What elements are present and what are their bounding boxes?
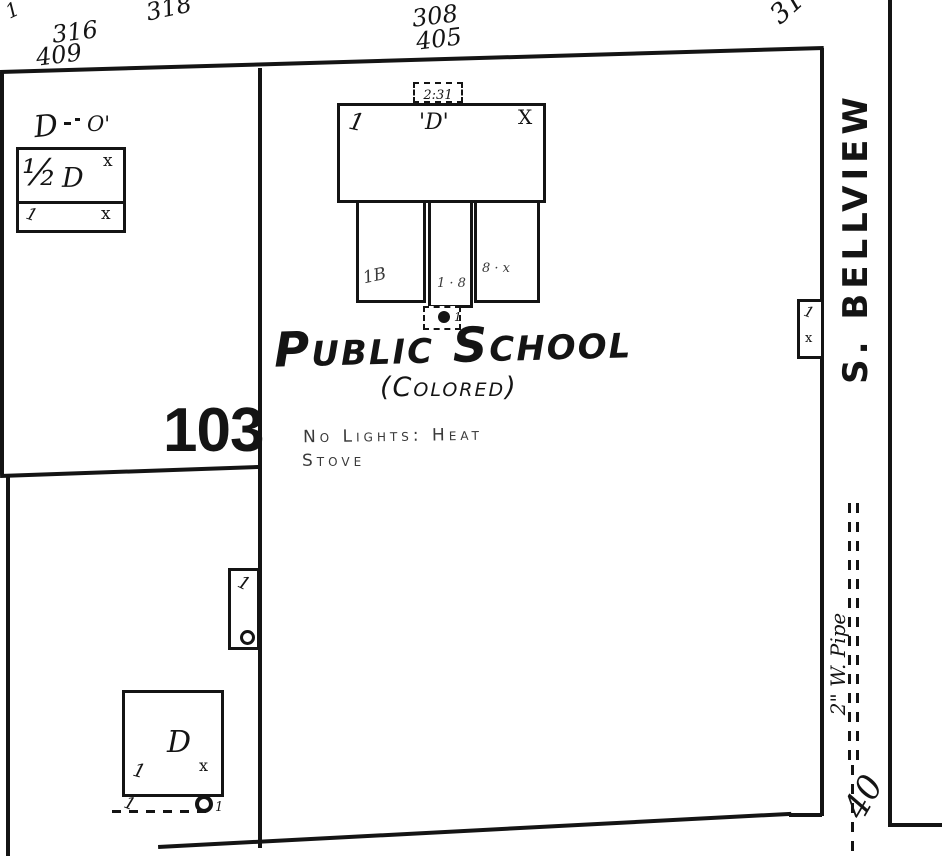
street-east-foot-line <box>890 823 942 827</box>
nw-dwelling-strip-right: x <box>101 206 111 223</box>
school-wing-left-mark: 1B <box>361 266 387 287</box>
school-main-mark-center: 'D' <box>419 112 449 134</box>
street-west-foot-line <box>789 813 822 817</box>
left-edge-line <box>0 72 4 474</box>
school-note-line1: No Lights: Heat <box>303 427 483 447</box>
street-west-line <box>820 48 824 816</box>
nw-annotation-label: D <box>32 111 59 143</box>
school-subtitle: (Colored) <box>380 374 518 401</box>
mid-lot-line <box>0 465 262 478</box>
sw-dwelling-mark-right: x <box>199 758 208 774</box>
top-lot-line <box>0 46 824 74</box>
street-name: S. BELLVIEW <box>839 92 873 384</box>
house-number-318: 318 <box>144 0 194 25</box>
house-number-31: 31 <box>765 0 809 29</box>
sw-porch-circle <box>195 795 213 813</box>
street-width-mark: 40 <box>838 770 889 824</box>
ink-dash <box>64 122 71 125</box>
school-wing-right-mark: 8 · x <box>482 262 510 275</box>
house-number-stray: 1 <box>2 0 22 22</box>
school-main-mark-right: X <box>518 107 532 127</box>
nw-annotation-mark: O' <box>87 114 110 135</box>
street-east-line <box>888 0 892 827</box>
house-number-409: 409 <box>35 40 83 69</box>
left-lower-lot-line <box>6 474 10 856</box>
nw-dwelling-label: D <box>62 165 84 192</box>
school-title: Public School <box>273 317 632 374</box>
school-roof-mark: 2:31 <box>423 88 452 103</box>
west-porch-circle <box>240 630 255 645</box>
water-pipe-label: 2" W. Pipe <box>828 613 848 716</box>
block-number: 103 <box>163 400 263 462</box>
school-wing-middle-mark: 1 · 8 <box>437 277 466 290</box>
house-number-405: 405 <box>415 24 463 53</box>
sanborn-map: 2:31 1 'D' X 1B 1 · 8 8 · x 1 1 x 1 ½ D … <box>0 0 942 856</box>
street-porch-mark-bottom: x <box>805 332 812 345</box>
nw-dwelling-story: ½ <box>22 156 57 192</box>
water-pipe-dash-right <box>856 503 859 765</box>
school-roof-mark-box: 2:31 <box>413 82 463 103</box>
school-note-line2: Stove <box>302 453 365 470</box>
ink-dash <box>75 118 80 121</box>
bottom-lot-line <box>158 812 791 849</box>
school-wing-middle <box>428 200 473 308</box>
nw-dwelling-corner-mark: x <box>103 153 113 170</box>
sw-dwelling-label: D <box>167 728 191 758</box>
sw-porch-mark: 1 <box>215 801 223 814</box>
school-wing-right <box>474 200 540 303</box>
